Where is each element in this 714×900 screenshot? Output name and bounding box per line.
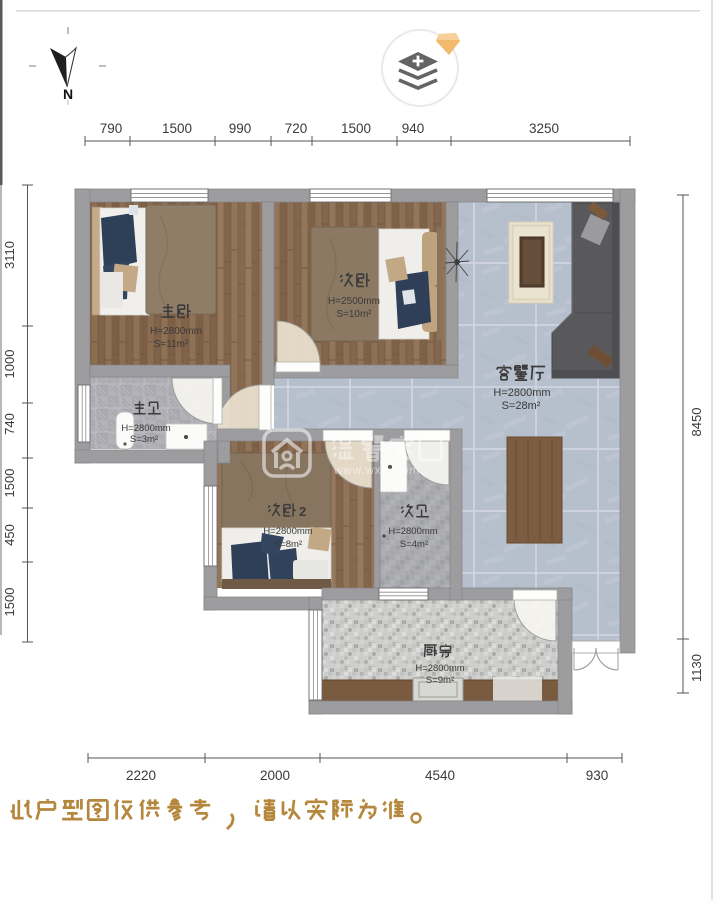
svg-text:930: 930 [586,768,609,783]
svg-text:H=2800mm: H=2800mm [121,423,170,434]
svg-text:1500: 1500 [341,121,371,136]
svg-text:S=9m²: S=9m² [426,675,454,686]
svg-text:3110: 3110 [2,241,17,269]
svg-text:H=2800mm: H=2800mm [415,663,464,674]
svg-text:H=2800mm: H=2800mm [263,526,312,537]
svg-text:H=2800mm: H=2800mm [493,387,550,399]
svg-text:8450: 8450 [689,408,704,437]
svg-text:990: 990 [229,121,252,136]
svg-text:www.wxjy.com: www.wxjy.com [333,465,420,477]
svg-text:4540: 4540 [425,768,455,783]
svg-text:2: 2 [299,504,306,519]
svg-text:790: 790 [100,121,123,136]
svg-text:S=8m²: S=8m² [274,539,302,550]
svg-text:3250: 3250 [529,121,559,136]
svg-text:1500: 1500 [162,121,192,136]
svg-text:720: 720 [285,121,308,136]
svg-text:S=3m²: S=3m² [130,434,158,445]
svg-text:S=11m²: S=11m² [154,339,189,350]
svg-text:1500: 1500 [2,469,17,498]
svg-text:740: 740 [2,413,17,435]
svg-text:S=10m²: S=10m² [336,309,372,320]
svg-text:S=28m²: S=28m² [502,400,541,412]
svg-text:H=2500mm: H=2500mm [328,296,380,307]
svg-text:H=2800mm: H=2800mm [150,326,202,337]
svg-text:N: N [63,86,73,102]
svg-text:S=4m²: S=4m² [400,539,428,550]
svg-text:2220: 2220 [126,768,156,783]
svg-text:1500: 1500 [2,588,17,617]
svg-text:450: 450 [2,524,17,546]
svg-text:940: 940 [402,121,425,136]
svg-text:1000: 1000 [2,350,17,379]
svg-text:1130: 1130 [689,654,704,682]
svg-text:H=2800mm: H=2800mm [388,526,437,537]
svg-text:2000: 2000 [260,768,290,783]
